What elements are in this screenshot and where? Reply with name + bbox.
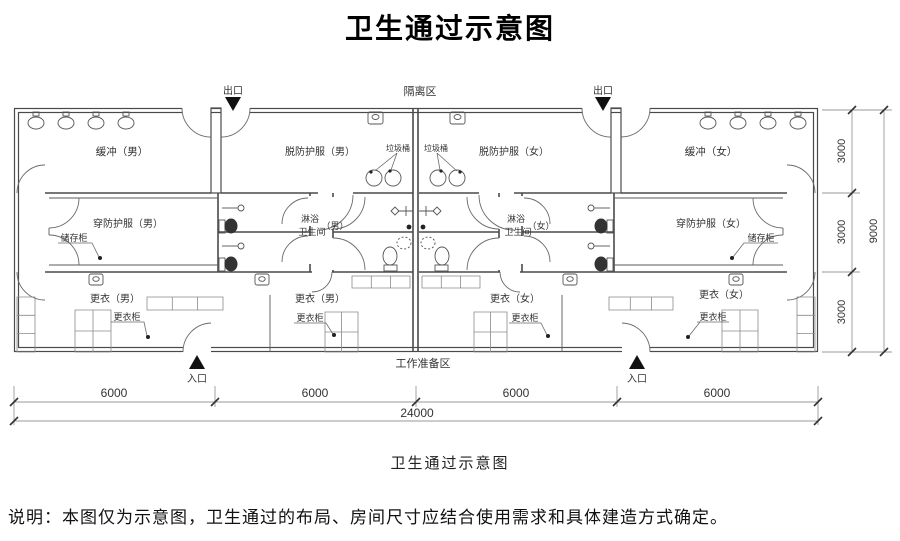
dim-bottom-4: 6000	[704, 386, 731, 400]
locker-label: 更衣柜	[511, 312, 538, 323]
room-label-change-male-2: 更衣（男）	[295, 292, 345, 305]
interior-walls	[45, 108, 787, 352]
shower-fixture-icon	[118, 112, 134, 129]
dim-right-3: 3000	[836, 300, 848, 324]
storage-cabinet-label: 储存柜	[60, 232, 87, 243]
room-label-change-female-1: 更衣（女）	[490, 292, 540, 305]
trash-bin-icon	[430, 170, 446, 186]
room-label-don-ppe-male: 穿防护服（男）	[93, 217, 163, 230]
shower-head-icons	[391, 206, 441, 229]
dim-bottom-1: 6000	[101, 386, 128, 400]
shower-fixture-icon	[58, 112, 74, 129]
room-label-change-male-1: 更衣（男）	[90, 292, 140, 305]
trash-bin-icon	[366, 170, 382, 186]
dim-bottom-2: 6000	[302, 386, 329, 400]
zone-label-isolation: 隔离区	[404, 84, 437, 98]
trash-bin-icon	[449, 170, 465, 186]
note-text: 说明：本图仅为示意图，卫生通过的布局、房间尺寸应结合使用需求和具体建造方式确定。	[8, 503, 892, 528]
exit-label: 出口	[593, 84, 613, 97]
room-label-shower-female: 淋浴	[507, 213, 525, 224]
entrance-arrow-icon	[629, 355, 645, 369]
room-label-doff-ppe-male: 脱防护服（男）	[285, 145, 355, 158]
dim-bottom-3: 6000	[503, 386, 530, 400]
entrance-label: 入口	[627, 374, 647, 385]
sink-icon	[563, 274, 577, 285]
entrance-label: 入口	[187, 374, 207, 385]
room-label-male-suffix: （男）	[321, 221, 348, 231]
trash-bin-label: 垃圾桶	[386, 143, 410, 153]
dim-right-1: 3000	[836, 139, 848, 163]
entrance-arrow-icon	[189, 355, 205, 369]
room-label-female-suffix: （女）	[527, 220, 554, 231]
shower-fixture-icon	[700, 112, 716, 129]
toilet-icon	[595, 257, 614, 272]
exit-label: 出口	[223, 84, 243, 97]
trash-bin-icons	[366, 169, 465, 186]
toilet-icon	[383, 247, 397, 271]
sink-icon	[368, 112, 383, 124]
shower-fixture-icon	[760, 112, 776, 129]
locker-label: 更衣柜	[113, 311, 140, 322]
locker-label: 更衣柜	[296, 312, 323, 323]
shower-fixture-icon	[88, 112, 104, 129]
locker-label: 更衣柜	[699, 311, 726, 322]
figure-caption: 卫生通过示意图	[0, 452, 900, 473]
room-label-buffer-male: 缓冲（男）	[96, 145, 149, 158]
shower-fixture-icon	[790, 112, 806, 129]
toilet-icon	[435, 247, 449, 271]
dim-right-2: 3000	[836, 220, 848, 244]
room-label-doff-ppe-female: 脱防护服（女）	[479, 145, 549, 158]
shower-fixture-icon	[28, 112, 44, 129]
document-page: 卫生通过示意图	[0, 0, 900, 541]
ceiling-fixture-icons	[28, 112, 806, 129]
trash-bin-label: 垃圾桶	[424, 143, 448, 153]
room-label-buffer-female: 缓冲（女）	[685, 145, 738, 158]
room-label-don-ppe-female: 穿防护服（女）	[676, 217, 746, 230]
room-label-change-female-2: 更衣（女）	[699, 288, 749, 301]
dim-right-total: 9000	[868, 219, 880, 243]
trash-bin-icon	[385, 170, 401, 186]
storage-cabinet-label: 储存柜	[747, 232, 774, 243]
zone-label-work-prep: 工作准备区	[396, 356, 451, 370]
sink-icon	[255, 274, 269, 285]
dim-bottom-total: 24000	[400, 406, 434, 420]
floor-drain-icons	[397, 237, 435, 249]
sink-icon	[450, 112, 465, 124]
shower-fixture-icon	[730, 112, 746, 129]
sink-icons	[89, 112, 743, 285]
sink-icon	[729, 274, 743, 285]
sink-icon	[89, 274, 103, 285]
toilet-icon	[219, 257, 238, 272]
room-label-shower-male: 淋浴	[301, 213, 319, 224]
